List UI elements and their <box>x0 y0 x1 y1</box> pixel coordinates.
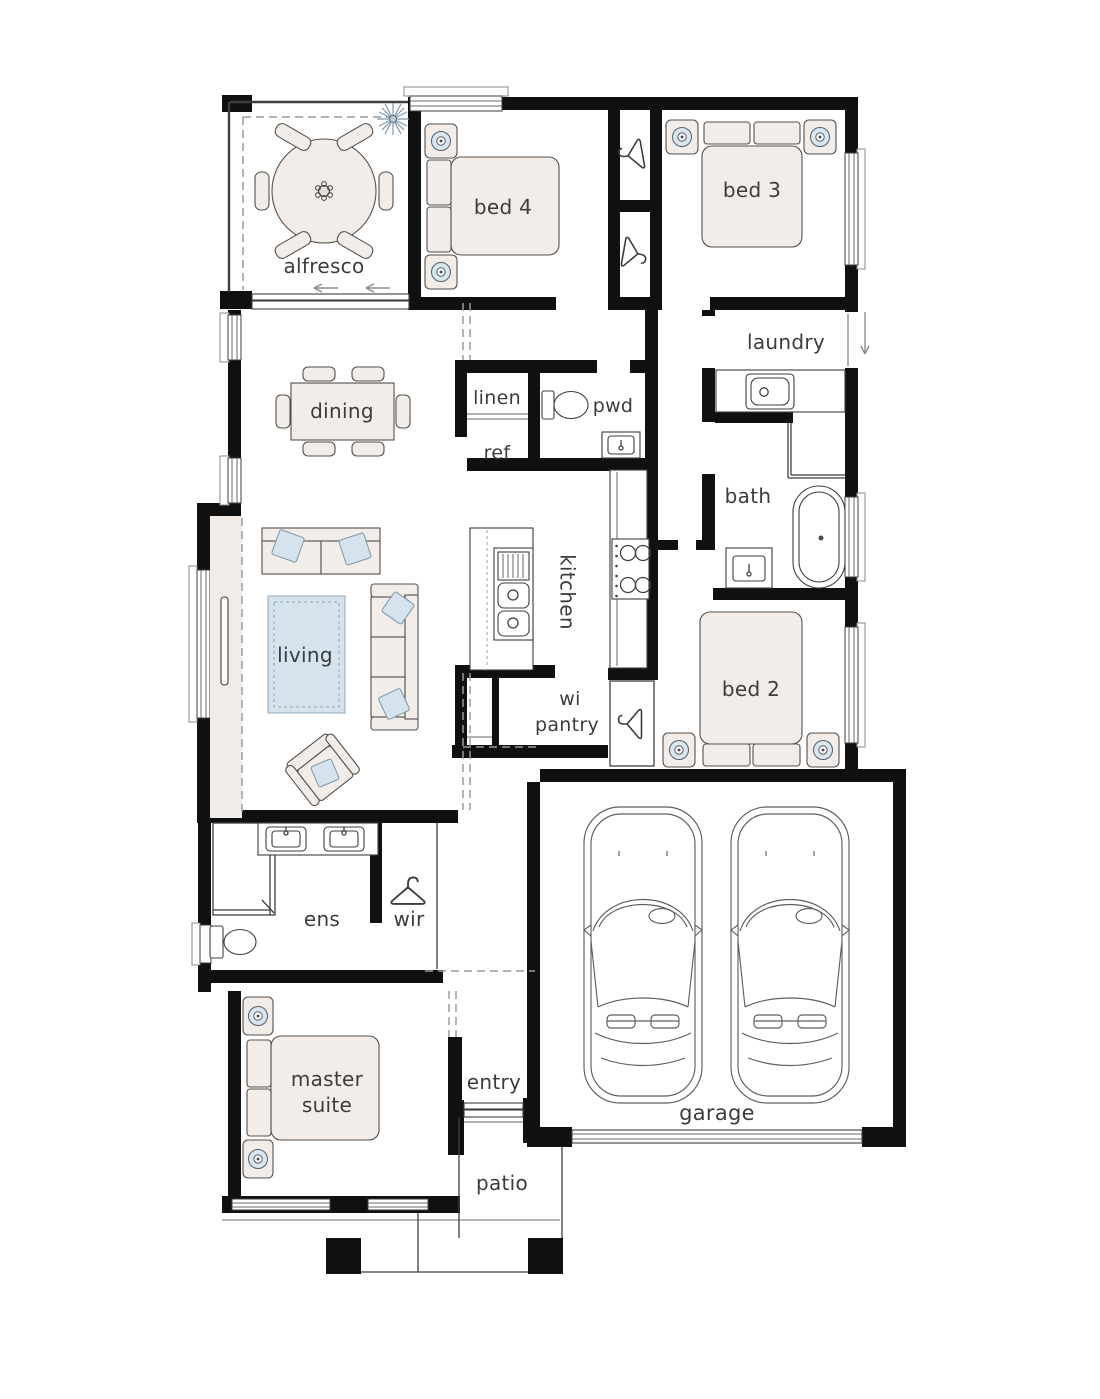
shower-icon <box>788 423 845 478</box>
window-bath-right <box>845 493 865 581</box>
room-kitchen: kitchen <box>470 470 651 670</box>
sliding-door <box>252 284 409 309</box>
label-entry: entry <box>467 1070 521 1094</box>
sofa-top <box>262 528 380 574</box>
lamp-icon <box>432 132 451 151</box>
car-icon <box>731 807 849 1103</box>
exterior-door-arrow-icon <box>861 312 869 354</box>
label-living: living <box>277 643 333 667</box>
window-dining-left-1 <box>220 313 241 362</box>
plant-icon <box>377 103 409 135</box>
room-ens: ens <box>210 823 378 958</box>
front-door <box>464 1103 523 1122</box>
room-dining: dining <box>276 367 410 456</box>
ens-vanity <box>258 823 378 855</box>
label-wi-pantry-1: wi <box>559 688 580 710</box>
room-wi-pantry: wi pantry <box>467 688 599 737</box>
window-living-left <box>189 566 210 722</box>
lamp-icon <box>814 741 833 760</box>
label-ref: ref <box>484 442 512 464</box>
window-bed2-right <box>845 623 865 747</box>
lamp-icon <box>670 741 689 760</box>
window-dining-left-2 <box>220 456 241 505</box>
label-bed3: bed 3 <box>723 178 781 202</box>
toilet-icon <box>210 926 256 958</box>
pwd-vanity <box>602 432 640 458</box>
window-master-bottom-2 <box>368 1199 428 1210</box>
patio-column <box>528 1238 563 1274</box>
hanger-icon <box>617 139 645 171</box>
label-laundry: laundry <box>747 330 825 354</box>
label-wir: wir <box>393 907 425 931</box>
label-garage: garage <box>679 1101 755 1125</box>
cooktop-icon <box>612 539 651 599</box>
kitchen-island <box>470 528 533 670</box>
ref-space: ref <box>484 442 512 464</box>
room-patio: patio <box>222 1117 563 1274</box>
label-pwd: pwd <box>593 395 634 417</box>
window-ens-left <box>192 923 211 965</box>
room-alfresco: alfresco <box>243 103 409 309</box>
room-garage: garage <box>572 807 862 1143</box>
room-pwd: pwd <box>542 391 640 458</box>
patio-column <box>326 1238 361 1274</box>
room-entry: entry <box>464 1070 523 1122</box>
bathtub-icon <box>793 486 845 588</box>
room-bath: bath <box>725 423 845 588</box>
floor-plan-page: alfresco bed 4 bed 3 laundry <box>0 0 1100 1399</box>
label-dining: dining <box>310 399 374 423</box>
label-bath: bath <box>725 484 772 508</box>
label-bed2: bed 2 <box>722 677 780 701</box>
floor-plan: alfresco bed 4 bed 3 laundry <box>0 0 1100 1399</box>
bath-vanity <box>726 548 772 588</box>
room-master-suite: master suite <box>243 991 456 1178</box>
room-living: living <box>210 516 418 818</box>
label-ens: ens <box>304 907 340 931</box>
garage-door <box>572 1130 862 1143</box>
bed2-robe <box>610 681 654 766</box>
label-bed4: bed 4 <box>474 195 532 219</box>
sink-icon <box>494 548 533 640</box>
window-master-bottom-1 <box>232 1199 330 1210</box>
label-master-2: suite <box>302 1093 352 1117</box>
lamp-icon <box>249 1007 268 1026</box>
laundry-sink-icon <box>746 374 794 409</box>
window-bed4-top <box>404 87 508 111</box>
label-patio: patio <box>476 1171 528 1195</box>
label-kitchen: kitchen <box>556 554 580 630</box>
car-icon <box>584 807 702 1103</box>
lamp-icon <box>811 128 830 147</box>
label-wi-pantry-2: pantry <box>535 714 599 736</box>
room-bed3: bed 3 <box>666 120 836 247</box>
hanger-icon <box>619 710 642 739</box>
room-bed4: bed 4 <box>425 124 559 289</box>
label-master-1: master <box>291 1067 364 1091</box>
lamp-icon <box>249 1150 268 1169</box>
room-linen: linen <box>467 387 528 419</box>
outdoor-table <box>272 139 376 243</box>
lamp-icon <box>673 128 692 147</box>
toilet-icon <box>542 391 588 419</box>
slide-arrow-icon <box>314 284 390 292</box>
room-bed2: bed 2 <box>663 612 839 767</box>
label-alfresco: alfresco <box>284 254 365 278</box>
window-bed3-right <box>845 149 865 269</box>
armchair <box>282 730 361 807</box>
room-wir: wir <box>391 823 535 971</box>
sofa-right <box>371 584 418 730</box>
hanger-icon <box>621 237 649 269</box>
label-linen: linen <box>473 387 521 409</box>
tv-icon <box>221 597 228 685</box>
hanger-icon <box>391 877 424 903</box>
lamp-icon <box>432 263 451 282</box>
